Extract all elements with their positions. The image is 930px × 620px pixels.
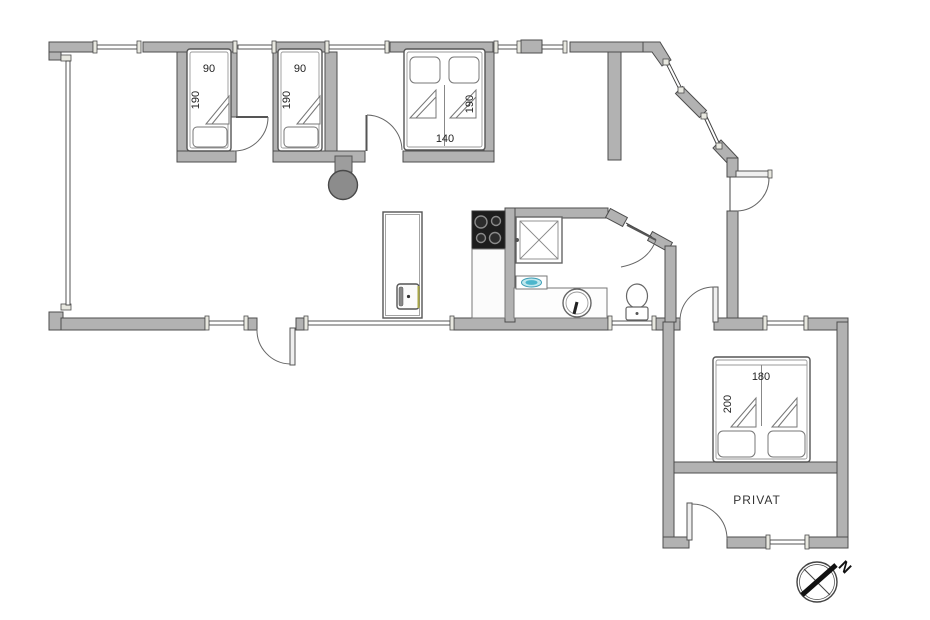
- door-entrance-swing: [257, 329, 290, 364]
- wall-top-1: [49, 42, 93, 52]
- door-wing-bedroom-swing: [680, 287, 714, 321]
- door-bedroom3-swing: [367, 115, 402, 150]
- bed1-width-label: 90: [203, 63, 215, 75]
- window-west-wall: [66, 61, 70, 305]
- wall-wing-east: [837, 322, 848, 548]
- wall-top-mullion: [521, 40, 542, 53]
- bed-single-2: 90 190: [278, 49, 322, 151]
- shower-valve: [515, 238, 519, 242]
- wall-bedrooms-south-1: [177, 151, 236, 162]
- wall-south-pier-1: [248, 318, 257, 330]
- wood-stove: [329, 156, 358, 200]
- door-wing-bedroom-leaf: [713, 287, 718, 322]
- wall-bedrooms-south-3: [403, 151, 494, 162]
- bed1-length-label: 190: [190, 91, 202, 109]
- wall-dining-nook: [608, 52, 621, 160]
- bed-double-140: 190 140: [404, 49, 485, 150]
- bathroom: [514, 217, 648, 320]
- vanity-counter: [514, 288, 607, 318]
- bed2-width-label: 90: [294, 63, 306, 75]
- wall-wing-south-3: [805, 537, 848, 548]
- bed3-length-label: 190: [464, 95, 476, 113]
- door-privat-leaf: [687, 503, 692, 540]
- bed4-width-label: 180: [752, 371, 770, 383]
- wall-south-pier-2: [296, 318, 304, 330]
- door-entrance-leaf: [290, 328, 295, 365]
- wall-wing-west: [663, 322, 674, 548]
- pillow: [449, 57, 479, 83]
- wall-wing-divider: [674, 462, 837, 473]
- pillow: [284, 127, 318, 147]
- wall-east-living: [727, 211, 738, 323]
- wall-bath-east: [665, 246, 676, 322]
- kitchen: [383, 211, 505, 318]
- pillow: [718, 431, 755, 457]
- wall-south-1: [61, 318, 205, 330]
- wall-top-5: [570, 42, 650, 52]
- wall-wing-south-2: [727, 537, 766, 548]
- bed-double-180: 180 200: [713, 357, 810, 462]
- door-bathroom-swing: [621, 240, 656, 267]
- stove-flue: [335, 156, 352, 172]
- floor-plan-page: 90 190 90 190 190 140 180 200: [0, 0, 930, 620]
- door-terrace-swing: [737, 178, 769, 211]
- wall-bath-diagonal-1: [606, 209, 628, 227]
- bed2-length-label: 190: [281, 91, 293, 109]
- pillow: [410, 57, 440, 83]
- window-south-long: [308, 321, 450, 325]
- floor-plan-drawing: 90 190 90 190 190 140 180 200: [0, 0, 930, 620]
- compass-rose: N: [797, 558, 854, 602]
- kitchen-counter: [472, 249, 505, 318]
- wall-wing-south-1: [663, 537, 689, 548]
- wall-south-2: [454, 318, 608, 330]
- bed-single-1: 90 190: [187, 49, 231, 151]
- oven-handle: [399, 287, 403, 306]
- toilet-bowl: [627, 284, 648, 308]
- pillow: [193, 127, 227, 147]
- door-bedroom1-swing: [234, 117, 268, 151]
- bed4-length-label: 200: [722, 395, 734, 413]
- stove-body: [329, 171, 358, 200]
- bed3-width-label: 140: [436, 133, 454, 145]
- privat-room-label: PRIVAT: [733, 493, 781, 507]
- wall-bedroom1-right-partial: [231, 52, 237, 117]
- north-label: N: [835, 558, 855, 578]
- pillow: [768, 431, 805, 457]
- door-terrace-leaf: [736, 171, 770, 177]
- wall-bedroom2-right: [325, 52, 337, 162]
- door-privat-swing: [692, 504, 727, 539]
- wall-south-4: [714, 318, 763, 330]
